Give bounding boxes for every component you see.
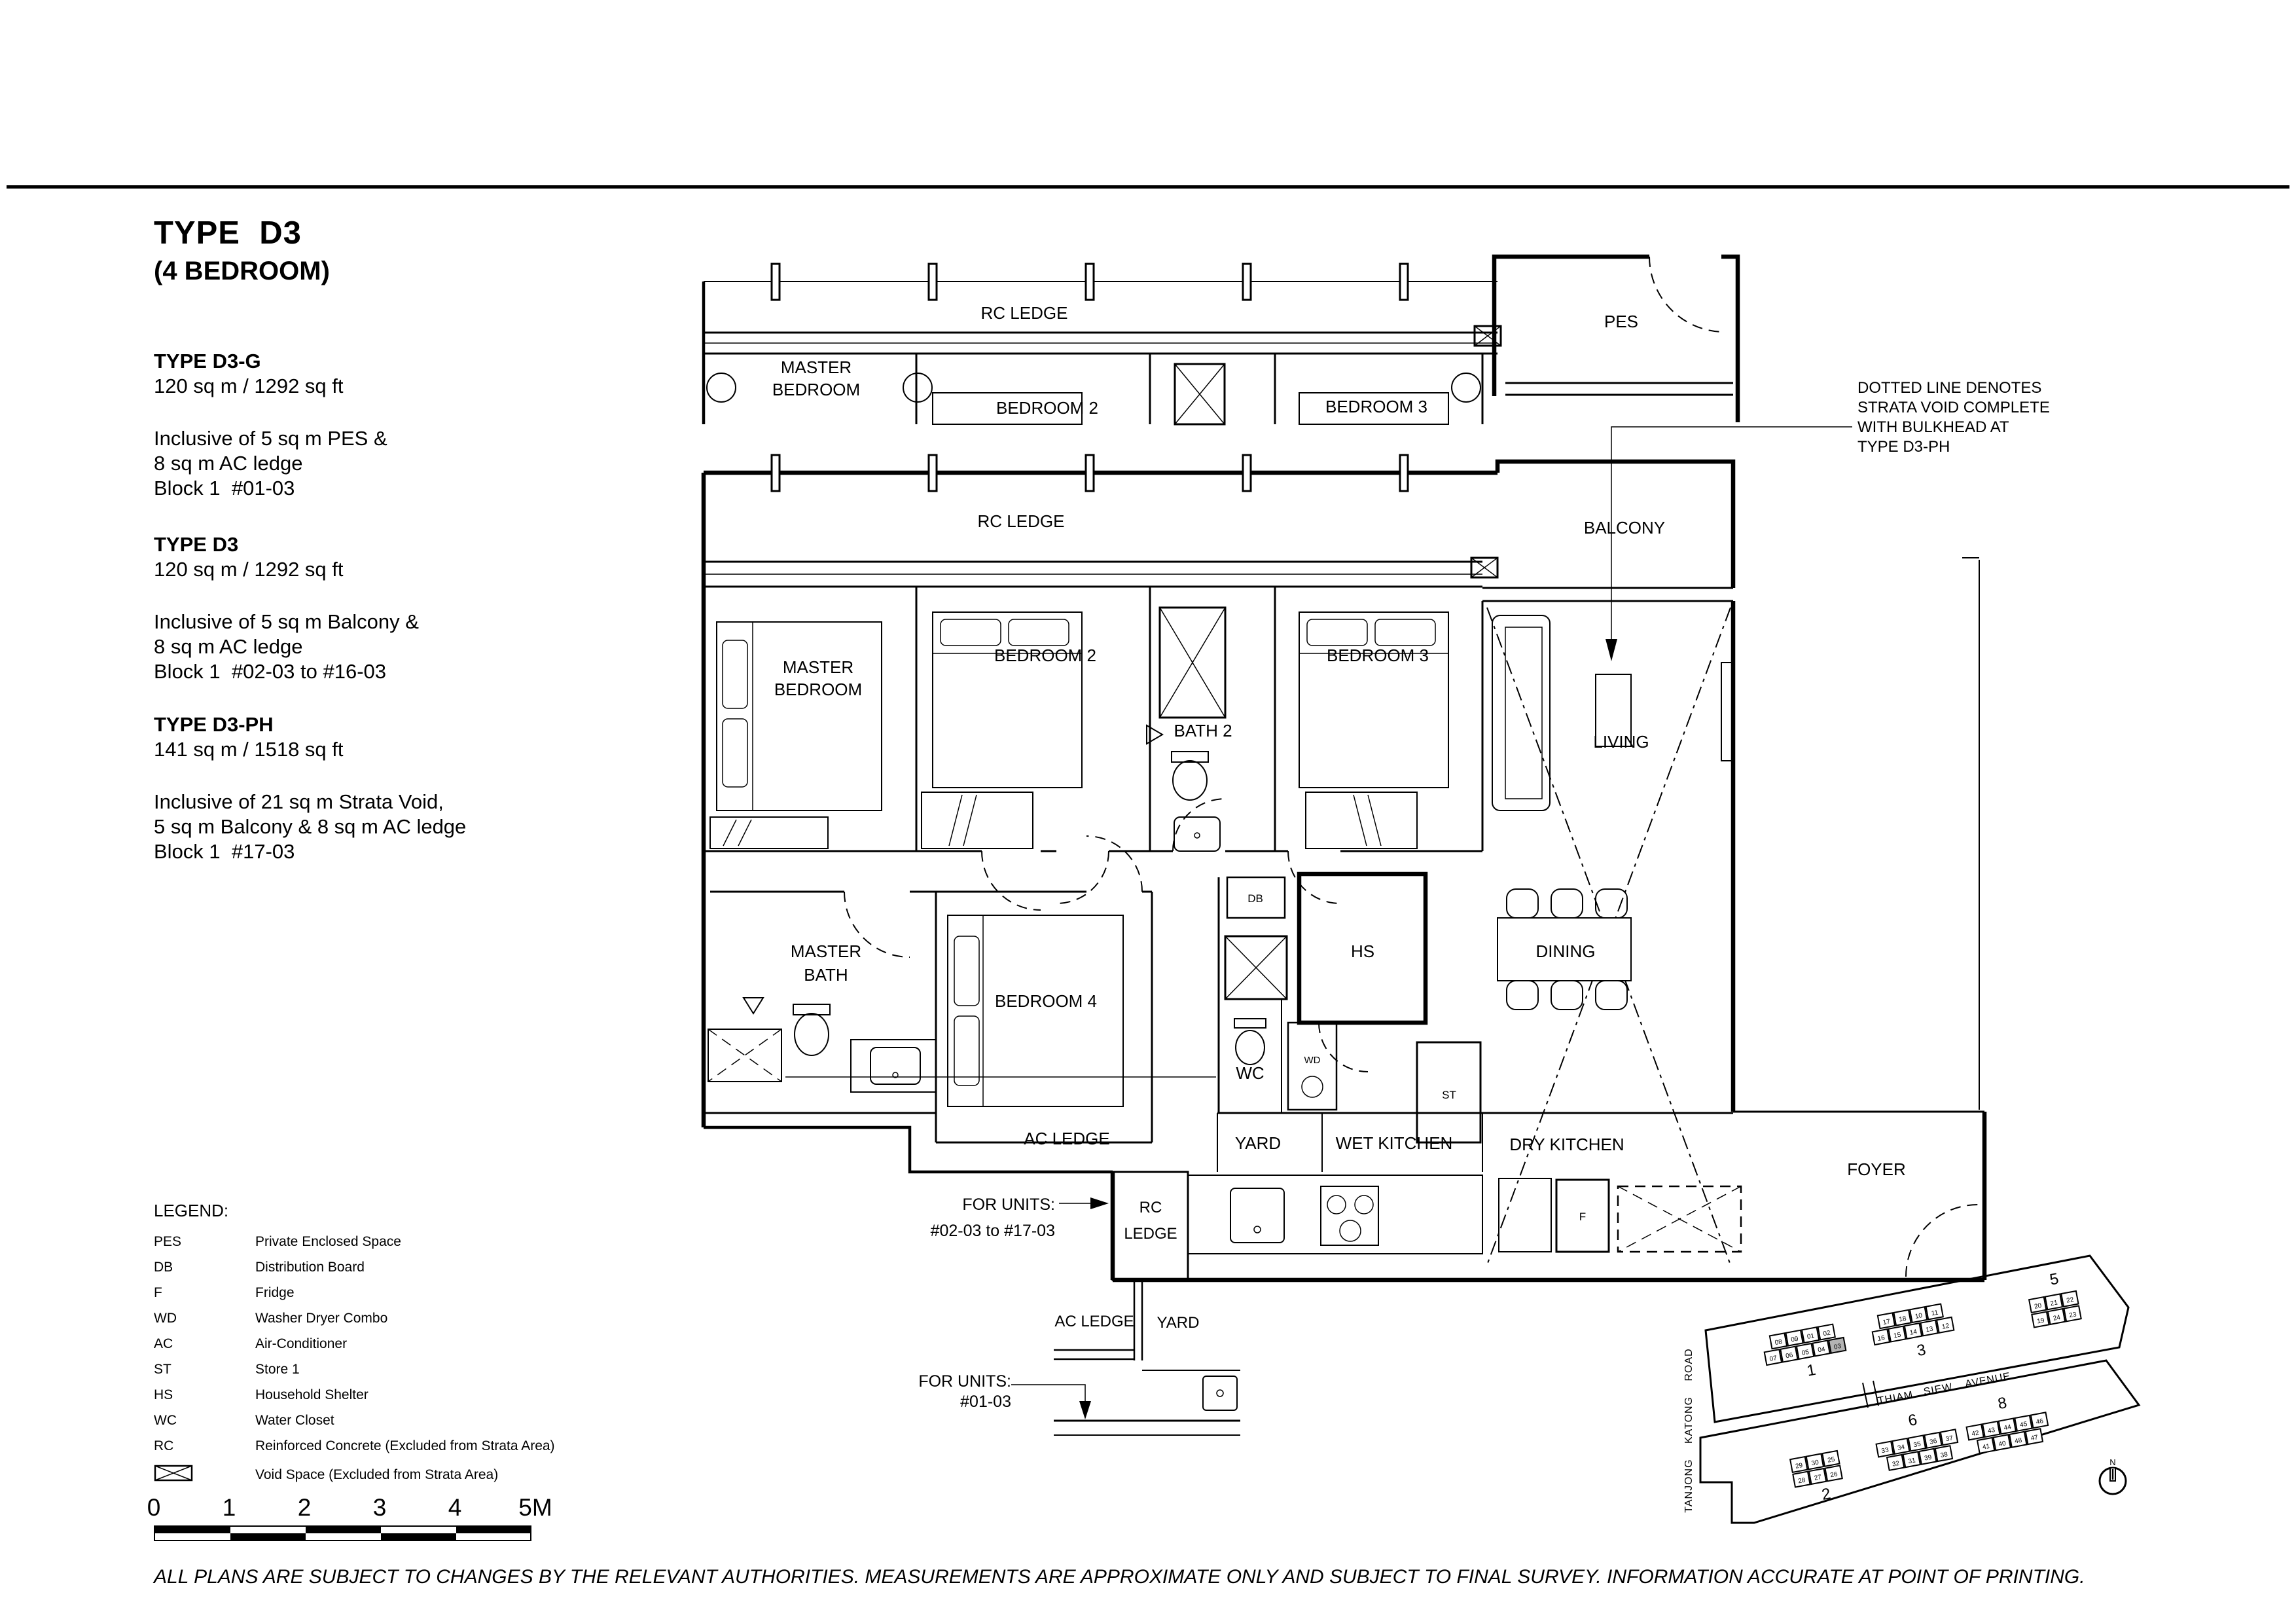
room-label-wd: WD bbox=[1304, 1055, 1321, 1066]
room-label-bedroom3-upper: BEDROOM 3 bbox=[1325, 397, 1427, 416]
siteplan-block-3: 1718101116151413123 bbox=[1870, 1302, 1958, 1367]
floorplan-page: TYPE D3 (4 BEDROOM) TYPE D3-G 120 sq m /… bbox=[0, 0, 2296, 1623]
for-units-lower-arrowhead bbox=[1079, 1401, 1091, 1419]
room-label-wet-kitchen: WET KITCHEN bbox=[1336, 1133, 1453, 1153]
room-label-rc1: RC bbox=[1139, 1199, 1162, 1216]
room-label-hs: HS bbox=[1351, 941, 1374, 961]
for-units-lower-leader bbox=[1011, 1385, 1085, 1409]
room-label-dining: DINING bbox=[1536, 941, 1596, 961]
detail-label-ac-ledge: AC LEDGE bbox=[1054, 1313, 1134, 1330]
siteplan-block-8: 4243444546414048478 bbox=[1962, 1387, 2051, 1455]
siteplan-block-1: 0809010207060504031 bbox=[1762, 1322, 1850, 1387]
north-label: N bbox=[2109, 1457, 2115, 1467]
upper-plan: RC LEDGE MASTER BEDROOM BEDROOM 2 BEDROO… bbox=[704, 257, 1738, 424]
wardrobe-icon-master bbox=[710, 817, 828, 848]
room-label-fridge: F bbox=[1579, 1211, 1586, 1223]
siteplan-block-label: 6 bbox=[1907, 1411, 1918, 1430]
siteplan-block-5: 2021221924235 bbox=[2024, 1267, 2081, 1328]
bed-icon-bedroom2 bbox=[933, 612, 1082, 788]
wardrobe-icon-bedroom2 bbox=[922, 792, 1033, 848]
room-label-dry-kitchen: DRY KITCHEN bbox=[1509, 1135, 1624, 1154]
room-label-mbath2: BATH bbox=[804, 965, 848, 985]
room-label-master2: BEDROOM bbox=[774, 680, 862, 699]
site-plan: TANJONG KATONG ROAD THIAM SIEW AVENUE 08… bbox=[1683, 1256, 2139, 1523]
siteplan-block-label: 1 bbox=[1805, 1361, 1817, 1380]
room-label-foyer: FOYER bbox=[1847, 1159, 1906, 1179]
room-label-rc-ledge-upper: RC LEDGE bbox=[981, 303, 1068, 323]
household-shelter bbox=[1299, 874, 1426, 1072]
washer-dryer-icon bbox=[1288, 1023, 1336, 1110]
for-units-upper-arrowhead bbox=[1090, 1197, 1109, 1209]
room-label-bedroom4: BEDROOM 4 bbox=[995, 991, 1097, 1011]
plan-drawing: RC LEDGE MASTER BEDROOM BEDROOM 2 BEDROO… bbox=[0, 0, 2296, 1623]
room-label-rc2: LEDGE bbox=[1124, 1225, 1177, 1243]
room-label-rc-ledge: RC LEDGE bbox=[978, 511, 1065, 531]
room-label-bath2: BATH 2 bbox=[1174, 721, 1232, 740]
room-label-master-upper: MASTER bbox=[781, 357, 852, 377]
room-label-living: LIVING bbox=[1593, 732, 1649, 752]
siteplan-block-label: 5 bbox=[2049, 1270, 2060, 1289]
siteplan-block-6: 3334353637323139386 bbox=[1871, 1404, 1960, 1472]
note-arrowhead bbox=[1605, 639, 1617, 661]
road-label-tanjong-katong: TANJONG KATONG ROAD bbox=[1683, 1348, 1695, 1512]
room-label-wc: WC bbox=[1236, 1063, 1264, 1083]
room-label-bedroom2: BEDROOM 2 bbox=[994, 646, 1096, 665]
room-label-st: ST bbox=[1442, 1089, 1456, 1101]
room-label-yard: YARD bbox=[1235, 1133, 1281, 1153]
north-compass-icon: N bbox=[2100, 1457, 2126, 1494]
siteplan-block-2: 2930252827262 bbox=[1790, 1451, 1846, 1508]
room-label-ac-ledge: AC LEDGE bbox=[1024, 1129, 1110, 1148]
siteplan-block-label: 8 bbox=[1996, 1394, 2008, 1413]
bed-icon-master bbox=[717, 622, 882, 811]
room-label-master1: MASTER bbox=[783, 657, 853, 677]
room-label-bedroom3: BEDROOM 3 bbox=[1327, 646, 1429, 665]
foyer-door-arc bbox=[1906, 1205, 1978, 1277]
main-plan: RC LEDGE BALCONY MASTER BEDROOM BEDROOM … bbox=[704, 427, 1984, 1419]
detail-label-yard: YARD bbox=[1157, 1314, 1200, 1332]
room-label-mbath1: MASTER bbox=[791, 941, 861, 961]
master-bath bbox=[704, 892, 936, 1142]
room-label-db: DB bbox=[1247, 892, 1263, 905]
bed-icon-bedroom3 bbox=[1299, 612, 1448, 788]
wardrobe-icon-bedroom3 bbox=[1306, 792, 1417, 848]
detail-plan: AC LEDGE YARD bbox=[1054, 1282, 1240, 1435]
room-label-balcony: BALCONY bbox=[1584, 518, 1665, 538]
room-label-pes: PES bbox=[1604, 312, 1638, 331]
siteplan-block-label: 3 bbox=[1916, 1341, 1928, 1360]
kitchen bbox=[1113, 1172, 1741, 1280]
room-label-bedroom2-upper: BEDROOM 2 bbox=[996, 398, 1098, 418]
bedroom4 bbox=[936, 836, 1152, 1142]
room-label-master-upper2: BEDROOM bbox=[772, 380, 860, 399]
road-label-siew: SIEW bbox=[1923, 1381, 1954, 1398]
